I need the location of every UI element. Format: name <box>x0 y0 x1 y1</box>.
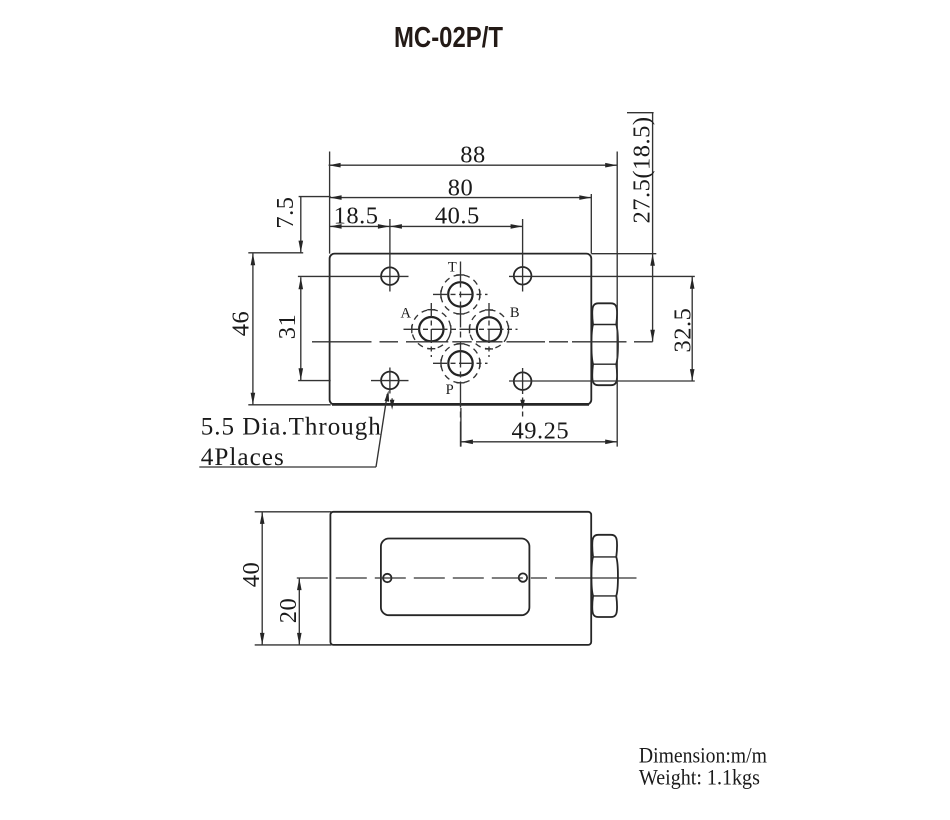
svg-text:80: 80 <box>448 175 474 202</box>
svg-text:32.5: 32.5 <box>670 308 697 353</box>
svg-text:Dimension:m/m: Dimension:m/m <box>639 742 767 767</box>
svg-text:P: P <box>446 382 454 398</box>
svg-text:31: 31 <box>274 314 301 340</box>
svg-text:T: T <box>448 259 457 275</box>
svg-text:B: B <box>510 305 520 321</box>
svg-text:18.5: 18.5 <box>334 203 379 230</box>
svg-text:88: 88 <box>460 142 486 169</box>
svg-text:20: 20 <box>275 598 302 624</box>
svg-text:40.5: 40.5 <box>435 203 480 230</box>
svg-text:Weight: 1.1kgs: Weight: 1.1kgs <box>639 765 760 790</box>
svg-text:7.5: 7.5 <box>272 196 299 228</box>
svg-text:MC-02P/T: MC-02P/T <box>394 22 503 54</box>
svg-text:49.25: 49.25 <box>511 418 569 445</box>
svg-text:46: 46 <box>228 311 255 337</box>
svg-text:A: A <box>400 306 411 322</box>
svg-text:40: 40 <box>238 562 265 588</box>
svg-text:5.5 Dia.Through: 5.5 Dia.Through <box>201 414 382 441</box>
svg-text:27.5(18.5): 27.5(18.5) <box>629 116 656 223</box>
